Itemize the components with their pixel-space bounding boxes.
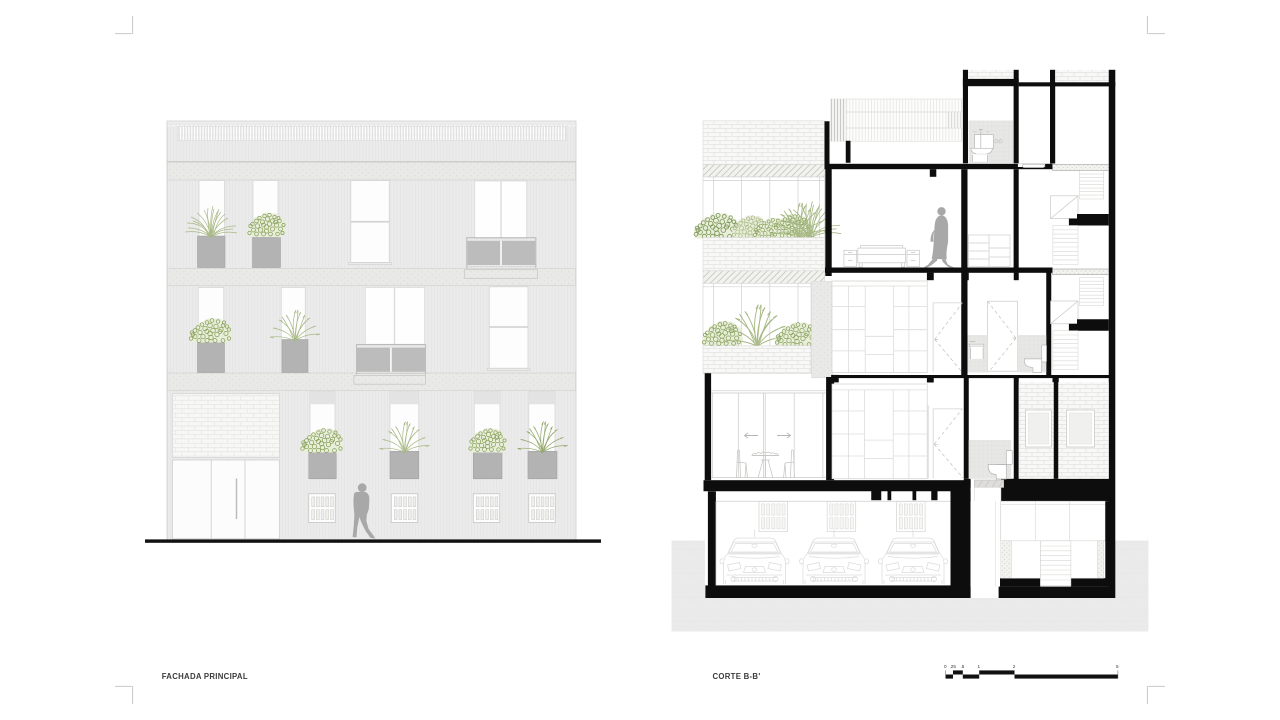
svg-text:FACHADA PRINCIPAL: FACHADA PRINCIPAL — [162, 672, 248, 681]
svg-text:0: 0 — [944, 664, 947, 669]
svg-text:2: 2 — [1013, 664, 1016, 669]
svg-text:.5: .5 — [961, 664, 965, 669]
svg-text:1: 1 — [978, 664, 981, 669]
svg-text:.25: .25 — [950, 664, 957, 669]
svg-text:5: 5 — [1116, 664, 1119, 669]
svg-text:CORTE B-B': CORTE B-B' — [713, 672, 761, 681]
